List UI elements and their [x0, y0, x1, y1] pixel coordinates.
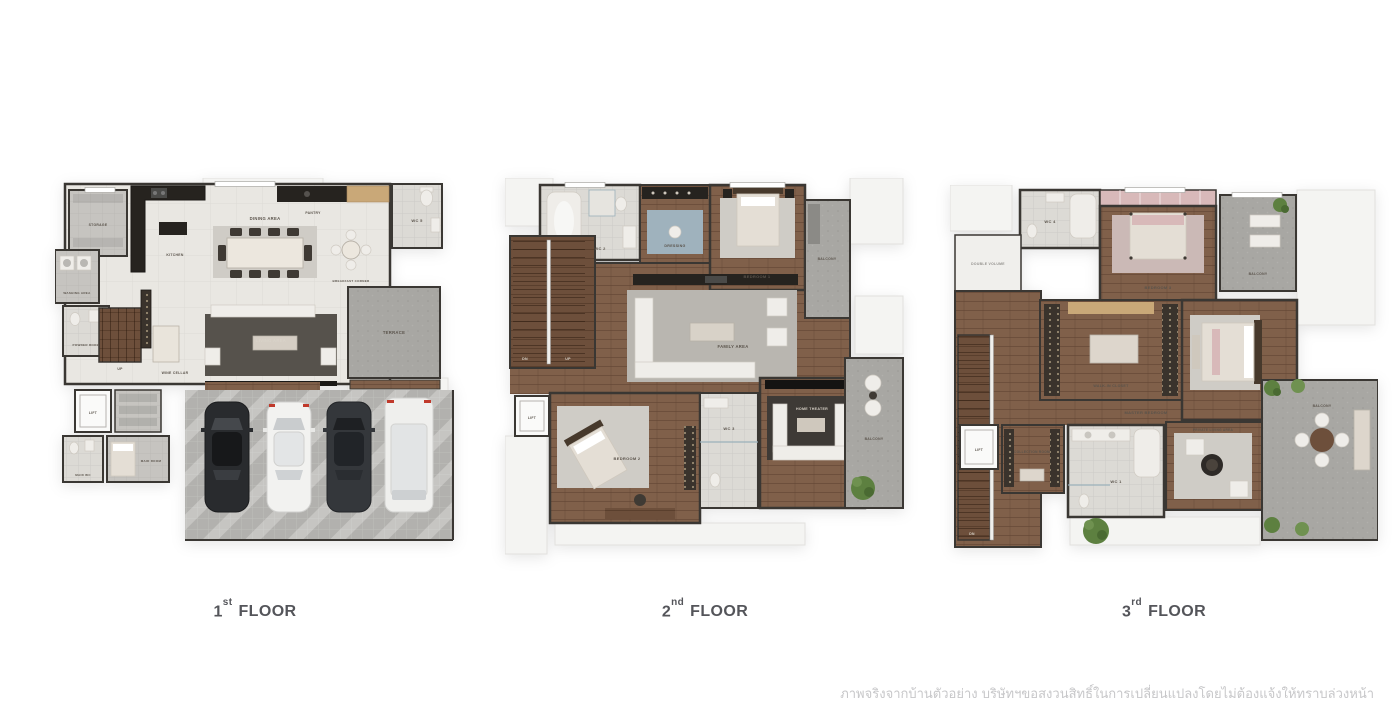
car-white-sedan: [263, 402, 315, 512]
room-wc4: [1020, 190, 1100, 248]
floor-1-ordinal: st: [223, 597, 233, 608]
stairs-label-up: UP: [117, 367, 123, 371]
toilet-icon: [710, 473, 720, 487]
armchair: [1186, 439, 1204, 455]
room-label-maid-wc: MAID WC: [75, 473, 91, 477]
car-white-suv: [385, 398, 433, 512]
room-label-lift: LIFT: [975, 448, 984, 452]
side-table: [869, 392, 877, 400]
store-closet: [115, 390, 161, 432]
coffee-table: [690, 323, 734, 341]
room-label-wc4: WC 4: [1044, 219, 1056, 224]
stairs-up: [99, 308, 141, 362]
entry-deck: [205, 382, 320, 390]
lounge-chair: [1250, 215, 1280, 227]
shower: [589, 190, 615, 216]
floorplan-3-svg: WC 4 DOUBLE VOLUME BEDROOM 3 BALCONY WAL…: [950, 185, 1378, 555]
outdoor-chair: [865, 400, 881, 416]
room-wc1: [1068, 425, 1164, 517]
closet-island: [1090, 335, 1138, 363]
basin: [704, 398, 728, 408]
stairs: [510, 236, 595, 368]
floor-3-ordinal: rd: [1131, 597, 1142, 608]
plant: [1264, 517, 1280, 533]
desk: [605, 508, 675, 519]
wardrobe: [1044, 304, 1060, 396]
plant: [1291, 379, 1305, 393]
armchair: [321, 348, 336, 365]
toilet-icon: [1079, 494, 1089, 508]
room-wc3: [700, 393, 758, 508]
room-label-storage: STORAGE: [89, 223, 108, 227]
sofa: [773, 446, 849, 460]
lounge-chair: [1250, 235, 1280, 247]
basin: [431, 218, 440, 232]
table: [797, 418, 825, 432]
bar-counter: [1354, 410, 1370, 470]
room-label-wine: WINE CELLAR: [162, 371, 189, 375]
headboard: [733, 187, 783, 194]
outdoor-table: [1310, 428, 1334, 452]
shelf: [1050, 429, 1060, 487]
console: [1020, 469, 1044, 481]
room-label-powder: POWDER ROOM: [73, 343, 100, 347]
room-label-bedroom3: BEDROOM 3: [1145, 285, 1172, 290]
kitchen-island: [159, 222, 187, 235]
room-label-pantry: PANTRY: [305, 211, 321, 215]
car-dark-sedan: [323, 402, 375, 512]
floor-3-number: 3: [1122, 603, 1131, 620]
plant: [1083, 518, 1109, 544]
floorplan-1st-floor: STORAGE KITCHEN PANTRY WC 5 WASHING AREA…: [55, 178, 455, 551]
room-washing-area: [55, 250, 99, 303]
floor-title-1: 1stFLOOR: [55, 602, 455, 621]
wardrobe: [1162, 304, 1178, 396]
basin: [623, 226, 636, 248]
room-label-balcony: BALCONY: [865, 437, 884, 441]
dressing-area: [640, 185, 710, 263]
room-label-theater: HOME THEATER: [796, 407, 828, 411]
floor-1-number: 1: [213, 603, 222, 620]
stairs-label-dn: DN: [522, 357, 528, 361]
room-label-master: MASTER BEDROOM: [1124, 410, 1167, 415]
toilet-icon: [420, 187, 433, 206]
room-label-terrace: TERRACE: [383, 330, 405, 335]
top-balcony: [1220, 195, 1296, 291]
floor-title-2: 2ndFLOOR: [505, 602, 905, 621]
floorplan-2nd-floor: WC 2 DRESSING BEDROOM 1 BALCONY FAMILY A…: [505, 178, 905, 563]
floor-2-number: 2: [662, 603, 671, 620]
wardrobe: [684, 426, 696, 490]
room-label-side-balcony: BALCONY: [818, 257, 837, 261]
armchair: [1230, 481, 1248, 497]
room-label-bedroom1: BEDROOM 1: [744, 274, 771, 279]
floor-1-word: FLOOR: [239, 603, 297, 620]
sofa: [773, 404, 787, 452]
floorplan-1-svg: STORAGE KITCHEN PANTRY WC 5 WASHING AREA…: [55, 178, 455, 546]
basin: [1046, 193, 1064, 202]
private-living: [1166, 422, 1262, 510]
room-label-kitchen: KITCHEN: [166, 253, 183, 257]
room-label-living: LIVING AREA: [256, 338, 286, 343]
entry-steps: [350, 380, 440, 389]
nightstand: [785, 189, 794, 198]
room-label-top-balcony: BALCONY: [1249, 272, 1268, 276]
room-wc5: [392, 184, 442, 248]
floor-title-3: 3rdFLOOR: [950, 602, 1378, 621]
room-label-wc2: WC 2: [594, 246, 606, 251]
collection-room: [1002, 425, 1064, 493]
headboard: [1254, 320, 1262, 384]
room-label-wc1: WC 1: [1110, 479, 1122, 484]
wine-island: [153, 326, 179, 362]
sofa: [211, 305, 315, 317]
room-label-wc3: WC 3: [723, 426, 735, 431]
floor-3-word: FLOOR: [1148, 603, 1206, 620]
floorplan-2-svg: WC 2 DRESSING BEDROOM 1 BALCONY FAMILY A…: [505, 178, 905, 558]
plant: [1295, 522, 1309, 536]
toilet-icon: [70, 313, 80, 326]
dining-table: [227, 238, 303, 268]
family-area: [627, 274, 798, 382]
double-vanity: [1072, 429, 1130, 441]
room-label-double-volume: DOUBLE VOLUME: [971, 262, 1005, 266]
floor-2-ordinal: nd: [671, 597, 684, 608]
bench: [1192, 335, 1200, 369]
armchair: [767, 328, 787, 346]
disclaimer-text: ภาพจริงจากบ้านตัวอย่าง บริษัทฯขอสงวนสิทธ…: [840, 683, 1374, 704]
room-label-lift: LIFT: [89, 411, 98, 415]
car-dark-sports: [201, 402, 253, 512]
toilet-icon: [70, 442, 79, 454]
cabinet: [808, 204, 820, 244]
room-label-lift: LIFT: [528, 416, 537, 420]
pantry-counter: [277, 186, 389, 202]
living-set: [205, 305, 337, 386]
room-label-bedroom2: BEDROOM 2: [614, 456, 641, 461]
shelf: [1004, 429, 1014, 487]
toilet-icon: [616, 197, 627, 211]
dining-set: [213, 226, 317, 278]
floorplan-3rd-floor: WC 4 DOUBLE VOLUME BEDROOM 3 BALCONY WAL…: [950, 185, 1378, 560]
sofa: [635, 298, 653, 368]
room-label-collection: COLLECTION ROOM: [1014, 450, 1050, 454]
outdoor-chair: [865, 375, 881, 391]
floorplan-sheet: STORAGE KITCHEN PANTRY WC 5 WASHING AREA…: [0, 0, 1400, 720]
room-label-walkin: WALK-IN CLOSET: [1093, 384, 1129, 388]
floor-2-word: FLOOR: [690, 603, 748, 620]
bathtub-icon: [1070, 194, 1096, 238]
armchair: [205, 348, 220, 365]
room-label-wc5: WC 5: [411, 218, 423, 223]
room-label-breakfast: BREAKFAST CORNER: [333, 279, 371, 283]
stairs-label-dn: DN: [969, 532, 975, 536]
bathtub-icon: [1134, 429, 1160, 477]
lift: [960, 425, 998, 469]
round-table: [342, 241, 360, 259]
pouf: [669, 226, 681, 238]
stairs-label-up: UP: [565, 357, 571, 361]
room-label-family: FAMILY AREA: [717, 344, 748, 349]
room-label-right-balcony: BALCONY: [1313, 404, 1332, 408]
room-label-dressing: DRESSING: [664, 244, 685, 248]
plant: [851, 476, 875, 500]
rear-balcony: [845, 358, 903, 508]
room-label-dining: DINING AREA: [250, 216, 281, 221]
nightstand: [723, 189, 732, 198]
sofa: [635, 362, 755, 378]
room-label-private-living: PRIVATE LIVING AREA: [1193, 428, 1234, 432]
toilet-icon: [1027, 224, 1037, 238]
desk-chair: [634, 494, 646, 506]
armchair: [767, 298, 787, 316]
room-label-maid: MAID ROOM: [141, 459, 162, 463]
dresser: [1068, 302, 1154, 314]
basin: [89, 310, 99, 322]
basin: [85, 440, 94, 451]
stair-railing: [547, 240, 551, 364]
room-label-washing: WASHING AREA: [63, 291, 91, 295]
